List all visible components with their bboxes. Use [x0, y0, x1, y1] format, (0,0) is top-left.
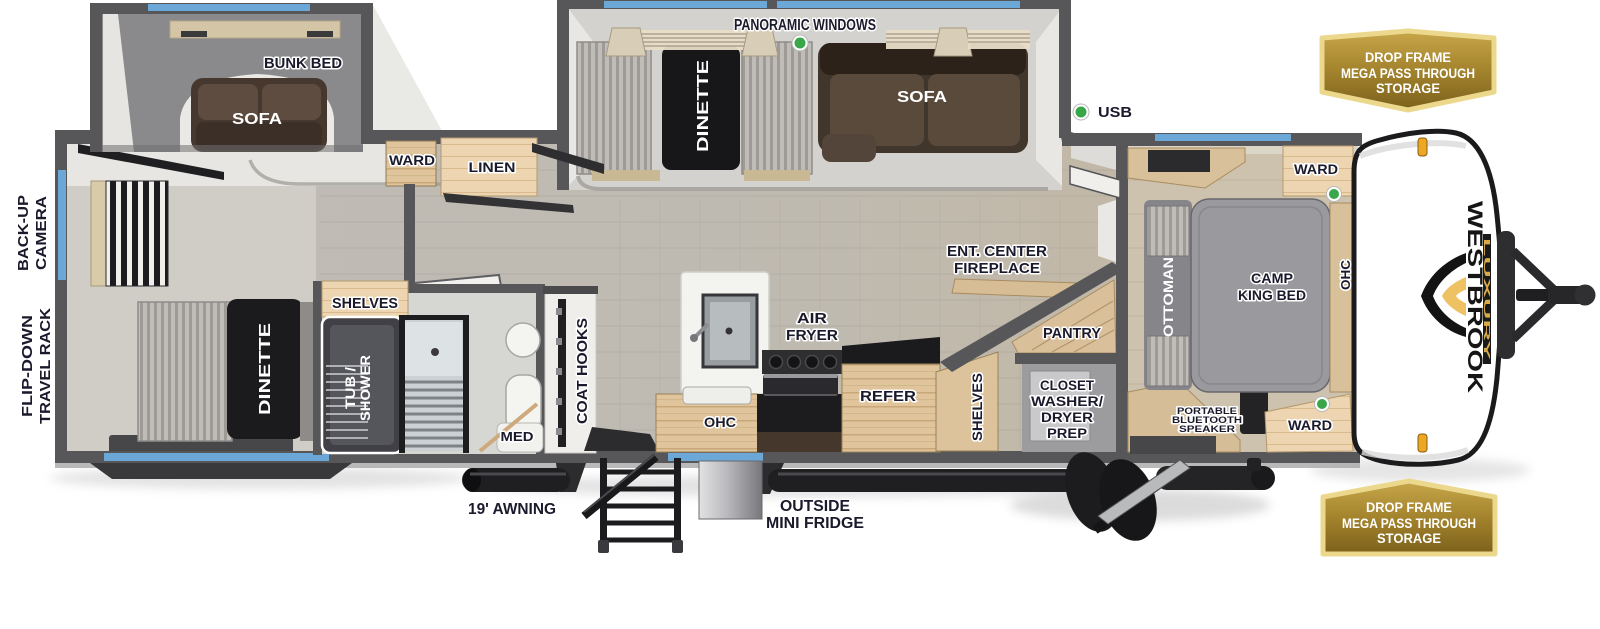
svg-text:BUNK BED: BUNK BED [264, 55, 342, 72]
svg-text:ENT. CENTER: ENT. CENTER [947, 243, 1047, 260]
svg-text:19' AWNING: 19' AWNING [468, 501, 556, 518]
svg-text:DROP FRAME: DROP FRAME [1365, 50, 1451, 65]
svg-text:COAT HOOKS: COAT HOOKS [574, 318, 591, 424]
svg-text:AIR: AIR [797, 310, 827, 327]
svg-text:SOFA: SOFA [232, 111, 282, 128]
svg-text:REFER: REFER [860, 389, 917, 405]
svg-text:WARD: WARD [1294, 161, 1338, 177]
svg-text:PANTRY: PANTRY [1043, 326, 1101, 342]
svg-text:DRYER: DRYER [1041, 410, 1093, 425]
svg-text:OUTSIDE: OUTSIDE [780, 498, 850, 515]
svg-text:FRYER: FRYER [786, 327, 838, 344]
svg-text:TUB /: TUB / [343, 367, 358, 409]
svg-text:WASHER/: WASHER/ [1031, 394, 1103, 409]
svg-text:CAMP: CAMP [1251, 270, 1293, 286]
svg-text:CAMERA: CAMERA [33, 196, 50, 270]
svg-text:PREP: PREP [1047, 426, 1087, 441]
svg-text:CLOSET: CLOSET [1040, 378, 1095, 393]
svg-text:OHC: OHC [1339, 260, 1353, 290]
svg-text:MEGA PASS THROUGH: MEGA PASS THROUGH [1342, 516, 1476, 531]
svg-text:MEGA PASS THROUGH: MEGA PASS THROUGH [1341, 66, 1475, 81]
svg-text:FLIP-DOWN: FLIP-DOWN [19, 315, 36, 417]
svg-text:SPEAKER: SPEAKER [1179, 424, 1236, 434]
svg-text:BACK-UP: BACK-UP [15, 195, 32, 271]
svg-text:STORAGE: STORAGE [1377, 531, 1441, 546]
svg-text:TRAVEL RACK: TRAVEL RACK [37, 308, 54, 424]
svg-text:SHELVES: SHELVES [332, 295, 398, 312]
svg-text:OTTOMAN: OTTOMAN [1160, 257, 1176, 337]
svg-text:USB: USB [1098, 104, 1132, 121]
svg-text:OHC: OHC [704, 414, 736, 430]
svg-text:SHOWER: SHOWER [358, 355, 373, 421]
svg-text:SOFA: SOFA [897, 89, 947, 106]
svg-text:MINI FRIDGE: MINI FRIDGE [766, 515, 864, 532]
svg-text:WARD: WARD [389, 152, 435, 168]
svg-text:MED: MED [501, 429, 534, 444]
svg-text:DINETTE: DINETTE [695, 60, 712, 152]
svg-text:WARD: WARD [1288, 417, 1332, 433]
svg-text:FIREPLACE: FIREPLACE [954, 260, 1040, 277]
svg-text:STORAGE: STORAGE [1376, 81, 1440, 96]
svg-text:PANORAMIC WINDOWS: PANORAMIC WINDOWS [734, 17, 876, 34]
svg-text:KING BED: KING BED [1238, 287, 1306, 303]
svg-text:LINEN: LINEN [469, 159, 516, 175]
svg-text:DINETTE: DINETTE [257, 323, 274, 415]
svg-text:SHELVES: SHELVES [970, 373, 985, 441]
svg-text:LUXURY: LUXURY [1482, 238, 1491, 362]
svg-text:DROP FRAME: DROP FRAME [1366, 500, 1452, 515]
